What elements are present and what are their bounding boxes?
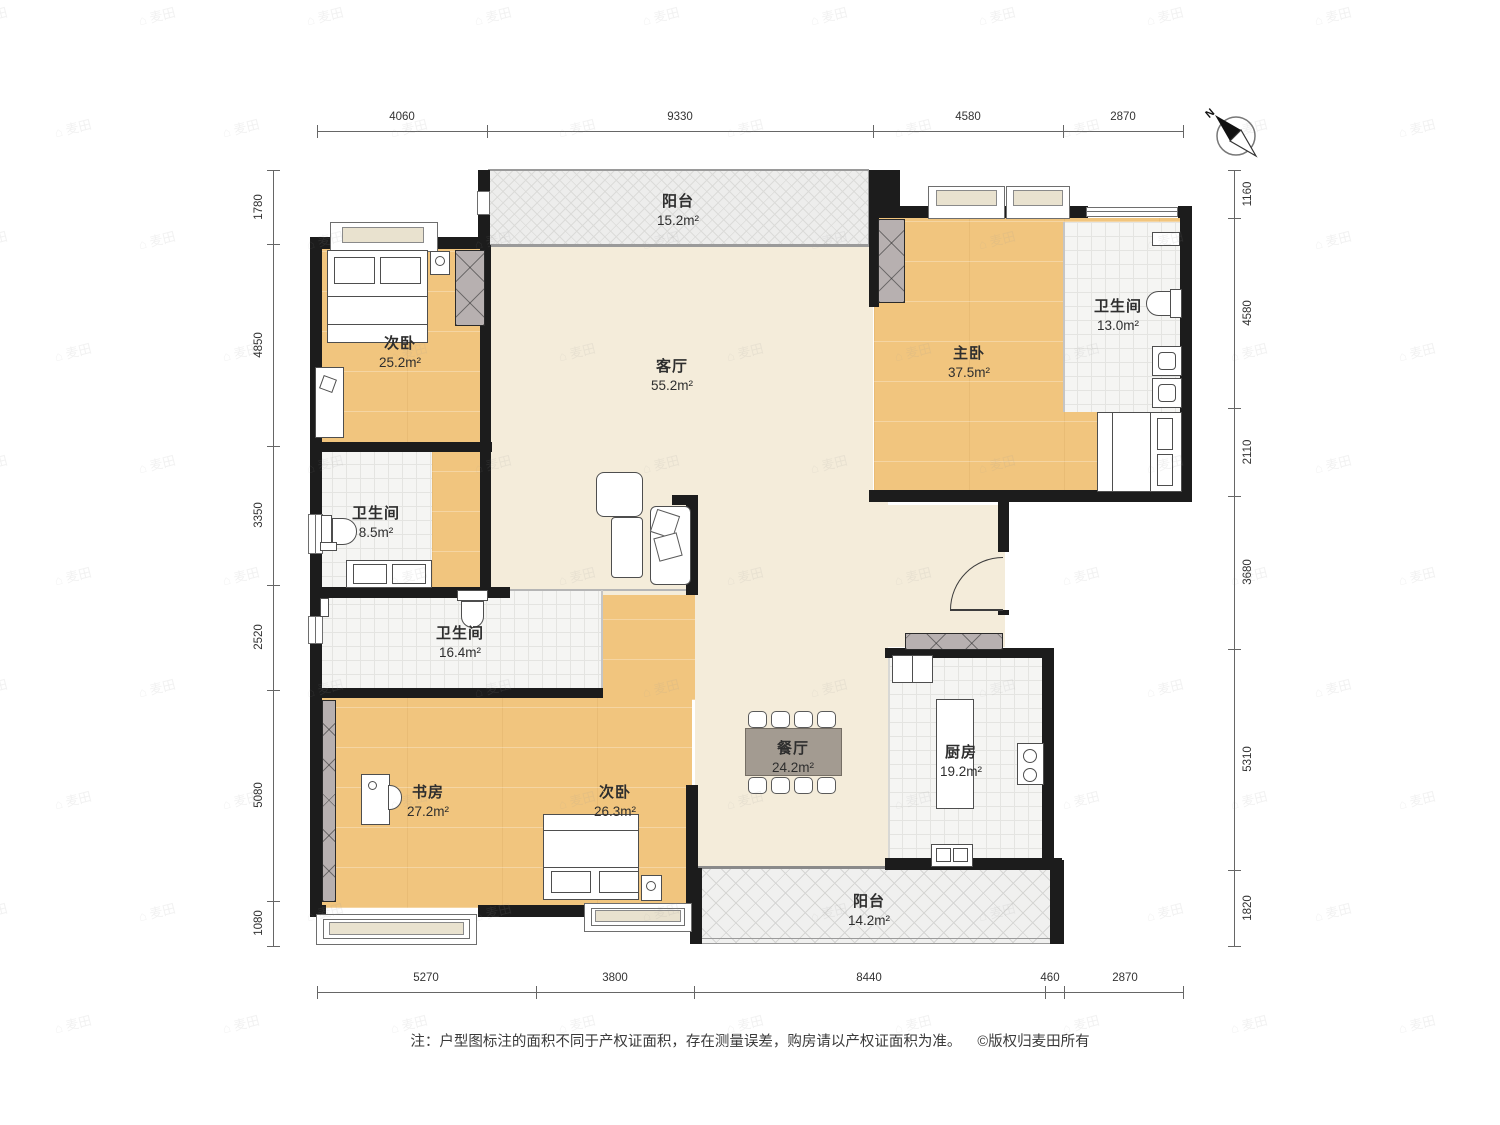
watermark: ⌂ 麦田 <box>1312 226 1353 254</box>
dining-chair <box>817 711 836 728</box>
bed1-blanket-line-1 <box>327 296 428 297</box>
dim-left-1: 1780 <box>253 194 265 220</box>
fridge-line <box>912 655 913 683</box>
watermark: ⌂ 麦田 <box>1060 786 1101 814</box>
bed2-pillow-2 <box>599 871 639 893</box>
dim-bottom-2: 3800 <box>602 972 628 984</box>
watermark: ⌂ 麦田 <box>472 2 513 30</box>
stove-burner-1 <box>1023 749 1037 763</box>
window-master-bath-line <box>1086 211 1178 212</box>
label-kitchen: 厨房 19.2m² <box>940 741 982 779</box>
dim-bottom-5: 2870 <box>1112 972 1138 984</box>
dining-chair <box>817 777 836 794</box>
watermark: ⌂ 麦田 <box>0 226 9 254</box>
room-area: 8.5m² <box>352 525 400 540</box>
sink-bath85-1 <box>353 564 387 584</box>
dining-chair <box>771 777 790 794</box>
window-master-2-sill <box>1013 190 1063 206</box>
floor-corridor2 <box>601 590 695 700</box>
faucet-bath85 <box>320 542 337 551</box>
wall-bottom-b <box>478 905 586 917</box>
wall-balcony-stub-b <box>478 214 490 247</box>
watermark: ⌂ 麦田 <box>1312 674 1353 702</box>
wall-entry-stub <box>998 502 1009 552</box>
ruler-tick <box>1228 496 1241 497</box>
window-master-1-sill <box>936 190 997 206</box>
watermark: ⌂ 麦田 <box>220 562 261 590</box>
label-bath-164: 卫生间 16.4m² <box>436 622 484 660</box>
sink-master-2-basin <box>1158 384 1176 402</box>
disclaimer-text: 注：户型图标注的面积不同于产权证面积，存在测量误差，购房请以产权证面积为准。 <box>410 1034 961 1050</box>
bed1-pillow-1 <box>334 257 375 284</box>
dim-top-2: 9330 <box>667 111 693 123</box>
watermark: ⌂ 麦田 <box>52 562 93 590</box>
dim-top-4: 2870 <box>1110 111 1136 123</box>
ruler-tick <box>873 125 874 138</box>
floor-plan: ⌂ 麦田⌂ 麦田⌂ 麦田⌂ 麦田⌂ 麦田⌂ 麦田⌂ 麦田⌂ 麦田⌂ 麦田⌂ 麦田… <box>0 0 1500 1125</box>
copyright-text: ©版权归麦田所有 <box>977 1034 1089 1050</box>
wardrobe-master <box>878 219 905 303</box>
room-name: 阳台 <box>657 190 699 211</box>
watermark: ⌂ 麦田 <box>1396 786 1437 814</box>
label-bath-85: 卫生间 8.5m² <box>352 502 400 540</box>
window-study-bay-sill <box>329 922 464 935</box>
room-area: 37.5m² <box>948 365 990 380</box>
wall-study-top <box>310 688 603 698</box>
dining-chair <box>794 711 813 728</box>
lamp-bed1-icon <box>435 256 445 266</box>
watermark: ⌂ 麦田 <box>136 226 177 254</box>
window-left-bath85-line <box>315 514 316 554</box>
hatched-wall-hallway <box>905 633 1003 650</box>
window-bedroom2-sill <box>595 910 681 922</box>
label-study: 书房 27.2m² <box>407 781 449 819</box>
entry-door-leaf <box>950 609 1003 611</box>
label-dining-room: 餐厅 24.2m² <box>772 737 814 775</box>
ruler-tick <box>267 446 280 447</box>
watermark: ⌂ 麦田 <box>52 114 93 142</box>
ruler-tick <box>487 125 488 138</box>
balcony-bottom-rail-2 <box>697 943 1052 944</box>
balcony-bottom-rail-1 <box>697 938 1052 939</box>
label-bedroom1: 次卧 25.2m² <box>379 332 421 370</box>
room-name: 书房 <box>407 781 449 802</box>
label-master-bedroom: 主卧 37.5m² <box>948 342 990 380</box>
ruler-tick <box>1228 170 1241 171</box>
ruler-tick <box>1183 125 1184 138</box>
lamp-bed2-icon <box>646 881 656 891</box>
watermark: ⌂ 麦田 <box>1060 114 1101 142</box>
dim-bottom-1: 5270 <box>413 972 439 984</box>
dim-right-5: 5310 <box>1242 746 1254 772</box>
ruler-tick <box>1183 986 1184 999</box>
sink-master-1-basin <box>1158 352 1176 370</box>
ruler-tick <box>1045 986 1046 999</box>
room-name: 卫生间 <box>436 622 484 643</box>
bed2-blanket-line <box>543 830 639 831</box>
toilet-bath164-tank <box>457 590 488 601</box>
room-name: 餐厅 <box>772 737 814 758</box>
wall-bed1-bottom <box>310 442 492 452</box>
room-area: 27.2m² <box>407 804 449 819</box>
wall-kitchen-bottom <box>885 858 1062 870</box>
room-area: 25.2m² <box>379 355 421 370</box>
watermark: ⌂ 麦田 <box>1312 450 1353 478</box>
washer-master-bath <box>1152 232 1180 246</box>
ruler-tick <box>536 986 537 999</box>
watermark: ⌂ 麦田 <box>1312 898 1353 926</box>
label-bedroom2: 次卧 26.3m² <box>594 781 636 819</box>
dim-left-6: 1080 <box>253 910 265 936</box>
room-name: 客厅 <box>651 355 693 376</box>
ruler-tick <box>1228 870 1241 871</box>
bed-master-line-1 <box>1150 412 1151 492</box>
watermark: ⌂ 麦田 <box>136 898 177 926</box>
ruler-tick <box>1228 218 1241 219</box>
room-name: 阳台 <box>848 890 890 911</box>
watermark: ⌂ 麦田 <box>1396 562 1437 590</box>
watermark: ⌂ 麦田 <box>0 450 9 478</box>
ruler-tick <box>1228 946 1241 947</box>
watermark: ⌂ 麦田 <box>304 2 345 30</box>
dim-bottom-3: 8440 <box>856 972 882 984</box>
kitchen-sink-basin-2 <box>953 848 968 862</box>
stove-burner-2 <box>1023 768 1037 782</box>
window-bedroom1-sill <box>342 227 424 243</box>
watermark: ⌂ 麦田 <box>0 2 9 30</box>
watermark: ⌂ 麦田 <box>1060 562 1101 590</box>
room-name: 卫生间 <box>1094 295 1142 316</box>
dining-chair <box>794 777 813 794</box>
room-area: 16.4m² <box>436 645 484 660</box>
ruler-top <box>317 131 1183 132</box>
dim-left-3: 3350 <box>253 502 265 528</box>
watermark: ⌂ 麦田 <box>724 114 765 142</box>
dim-right-4: 3680 <box>1242 559 1254 585</box>
side-table <box>611 517 643 578</box>
window-left-bath164-line <box>315 616 316 644</box>
watermark: ⌂ 麦田 <box>976 2 1017 30</box>
dim-bottom-4: 460 <box>1040 972 1059 984</box>
room-area: 13.0m² <box>1094 318 1142 333</box>
ruler-tick <box>267 244 280 245</box>
ruler-bottom <box>317 992 1183 993</box>
dining-chair <box>748 711 767 728</box>
bed-master-pillow-1 <box>1157 418 1173 450</box>
kitchen-sink-basin-1 <box>936 848 951 862</box>
label-master-bath: 卫生间 13.0m² <box>1094 295 1142 333</box>
watermark: ⌂ 麦田 <box>220 114 261 142</box>
watermark: ⌂ 麦田 <box>0 898 9 926</box>
dining-chair <box>771 711 790 728</box>
faucet-bath164 <box>320 598 329 617</box>
watermark: ⌂ 麦田 <box>136 2 177 30</box>
dining-balcony-opening <box>697 866 887 869</box>
wall-balcony-b-right <box>1050 860 1064 944</box>
dining-chair <box>748 777 767 794</box>
room-area: 15.2m² <box>657 213 699 228</box>
room-name: 主卧 <box>948 342 990 363</box>
watermark: ⌂ 麦田 <box>892 114 933 142</box>
dim-left-2: 4850 <box>253 332 265 358</box>
ruler-tick <box>267 690 280 691</box>
dim-right-1: 1160 <box>1242 182 1254 207</box>
ruler-tick <box>317 986 318 999</box>
ruler-tick <box>1228 649 1241 650</box>
dim-left-4: 2520 <box>253 624 265 650</box>
room-area: 19.2m² <box>940 764 982 779</box>
watermark: ⌂ 麦田 <box>0 674 9 702</box>
bed2-pillow-1 <box>551 871 591 893</box>
room-area: 55.2m² <box>651 378 693 393</box>
dim-top-3: 4580 <box>955 111 981 123</box>
window-master-bath-top <box>1086 207 1178 217</box>
sink-bath85-2 <box>392 564 426 584</box>
watermark: ⌂ 麦田 <box>808 2 849 30</box>
room-name: 次卧 <box>594 781 636 802</box>
curtain-wall-study <box>322 700 336 902</box>
bath164-corridor-divider <box>601 590 603 690</box>
watermark: ⌂ 麦田 <box>556 114 597 142</box>
watermark: ⌂ 麦田 <box>52 338 93 366</box>
window-balcony-stub <box>477 191 490 215</box>
room-area: 14.2m² <box>848 913 890 928</box>
wall-left-c <box>310 643 322 905</box>
dim-right-2: 4580 <box>1242 300 1254 326</box>
dim-left-5: 5080 <box>253 782 265 808</box>
watermark: ⌂ 麦田 <box>52 786 93 814</box>
lamp-study-icon <box>368 781 377 790</box>
ruler-tick <box>267 170 280 171</box>
watermark: ⌂ 麦田 <box>1312 2 1353 30</box>
ruler-tick <box>317 125 318 138</box>
footer-note: 注：户型图标注的面积不同于产权证面积，存在测量误差，购房请以产权证面积为准。©版… <box>0 1030 1500 1051</box>
wall-master-top-c <box>1068 206 1088 218</box>
watermark: ⌂ 麦田 <box>1396 114 1437 142</box>
room-area: 24.2m² <box>772 760 814 775</box>
label-living-room: 客厅 55.2m² <box>651 355 693 393</box>
ruler-right <box>1234 170 1235 946</box>
watermark: ⌂ 麦田 <box>1144 898 1185 926</box>
wall-balcony-stub-a <box>478 170 490 192</box>
label-balcony-top: 阳台 15.2m² <box>657 190 699 228</box>
ruler-tick <box>267 585 280 586</box>
label-balcony-bottom: 阳台 14.2m² <box>848 890 890 928</box>
room-name: 次卧 <box>379 332 421 353</box>
ruler-tick <box>1228 408 1241 409</box>
wardrobe-bedroom1 <box>455 250 485 326</box>
ruler-left <box>273 170 274 946</box>
kitchen-open-edge <box>888 652 890 858</box>
bed1-pillow-2 <box>380 257 421 284</box>
dim-right-3: 2110 <box>1242 440 1254 465</box>
toilet-master-tank <box>1170 289 1182 318</box>
toilet-master-bowl <box>1146 291 1172 316</box>
watermark: ⌂ 麦田 <box>136 674 177 702</box>
compass-icon: N <box>1203 103 1265 165</box>
bed-master-line-2 <box>1112 412 1113 492</box>
dim-right-6: 1820 <box>1242 895 1254 921</box>
ruler-tick <box>267 946 280 947</box>
watermark: ⌂ 麦田 <box>136 450 177 478</box>
ruler-tick <box>694 986 695 999</box>
compass-n-label: N <box>1203 106 1217 120</box>
bed-master-pillow-2 <box>1157 454 1173 486</box>
ruler-tick <box>1063 125 1064 138</box>
balcony-top-edge <box>488 169 869 171</box>
ruler-tick <box>267 901 280 902</box>
wall-master-top-a <box>895 206 930 218</box>
bed2-pillow-line <box>543 867 639 868</box>
master-bath-divider <box>1063 222 1065 412</box>
room-area: 26.3m² <box>594 804 636 819</box>
living-bath-divider <box>491 589 686 591</box>
watermark: ⌂ 麦田 <box>1144 2 1185 30</box>
watermark: ⌂ 麦田 <box>640 2 681 30</box>
coffee-table <box>596 472 643 517</box>
dim-top-1: 4060 <box>389 111 415 123</box>
bed1-blanket-line-2 <box>327 324 428 325</box>
room-name: 厨房 <box>940 741 982 762</box>
watermark: ⌂ 麦田 <box>1144 674 1185 702</box>
balcony-top-opening <box>488 244 869 246</box>
ruler-tick <box>1064 986 1065 999</box>
room-name: 卫生间 <box>352 502 400 523</box>
watermark: ⌂ 麦田 <box>1396 338 1437 366</box>
